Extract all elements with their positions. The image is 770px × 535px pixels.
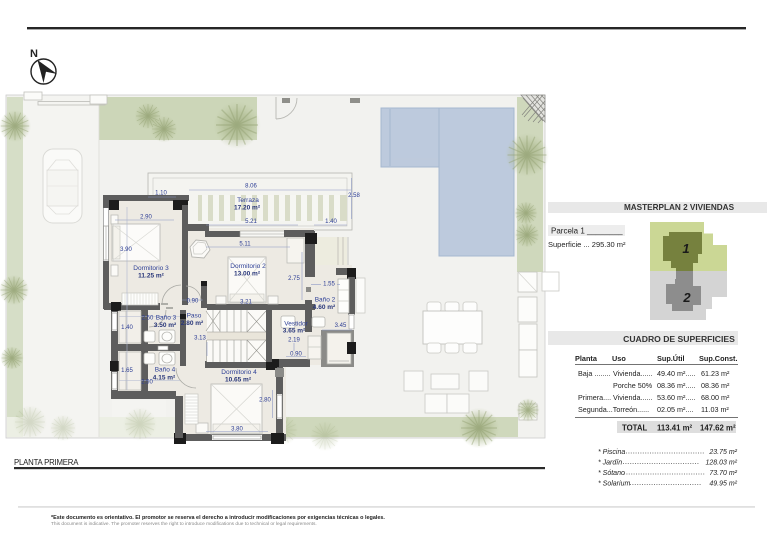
svg-text:3.65 m²: 3.65 m²	[283, 328, 306, 335]
svg-text:11.25 m²: 11.25 m²	[138, 273, 164, 280]
svg-text:Segunda...Torreón......: Segunda...Torreón......	[578, 405, 649, 414]
svg-text:2.58: 2.58	[348, 193, 360, 199]
svg-text:61.23 m²: 61.23 m²	[701, 369, 730, 378]
svg-text:Porche 50%: Porche 50%	[613, 381, 653, 390]
svg-text:1.55: 1.55	[323, 282, 335, 288]
svg-text:Vivienda......: Vivienda......	[613, 369, 652, 378]
svg-text:2.50: 2.50	[142, 316, 154, 322]
svg-text:13.00 m²: 13.00 m²	[234, 271, 261, 278]
svg-text:17.20 m²: 17.20 m²	[234, 205, 261, 212]
svg-text:3.13: 3.13	[194, 336, 206, 342]
svg-text:08.36 m²: 08.36 m²	[701, 381, 730, 390]
svg-text:2.80: 2.80	[259, 398, 271, 404]
svg-text:0.90: 0.90	[290, 352, 302, 358]
svg-text:8.06: 8.06	[245, 184, 257, 190]
svg-text:68.00 m²: 68.00 m²	[701, 393, 730, 402]
svg-text:2.50: 2.50	[141, 380, 153, 386]
svg-text:* Solarium: * Solarium	[598, 481, 630, 488]
svg-text:3.80: 3.80	[231, 427, 243, 433]
svg-text:2.19: 2.19	[288, 338, 300, 344]
svg-text:Superficie ... 295.30 m²: Superficie ... 295.30 m²	[548, 240, 626, 249]
svg-text:* Piscina: * Piscina	[598, 449, 625, 456]
svg-text:147.62 m²: 147.62 m²	[700, 424, 736, 433]
svg-text:3.21: 3.21	[240, 300, 252, 306]
svg-text:Sup.Útil: Sup.Útil	[657, 354, 685, 363]
svg-text:4.15 m²: 4.15 m²	[153, 375, 176, 382]
svg-text:Parcela 1 ________: Parcela 1 ________	[551, 227, 623, 236]
svg-text:Baño 2: Baño 2	[315, 297, 336, 304]
svg-text:23.75 m²: 23.75 m²	[708, 449, 737, 456]
svg-text:2.75: 2.75	[288, 276, 300, 282]
svg-text:5.21: 5.21	[245, 219, 257, 225]
svg-text:1: 1	[682, 241, 689, 256]
svg-text:Terraza: Terraza	[237, 197, 259, 204]
svg-text:Dormitorio 4: Dormitorio 4	[221, 369, 257, 376]
svg-text:1.10: 1.10	[155, 191, 167, 197]
svg-text:3.90: 3.90	[120, 247, 132, 253]
svg-text:0.90: 0.90	[187, 299, 199, 305]
svg-text:Uso: Uso	[612, 354, 626, 363]
svg-text:113.41 m²: 113.41 m²	[657, 424, 693, 433]
svg-text:11.03 m²: 11.03 m²	[701, 405, 729, 414]
svg-text:Dormitorio 3: Dormitorio 3	[133, 265, 169, 272]
svg-text:Vestidor: Vestidor	[284, 321, 308, 328]
svg-text:This document is indicative. T: This document is indicative. The promote…	[51, 521, 317, 527]
svg-text:TOTAL: TOTAL	[622, 424, 648, 433]
svg-text:PLANTA PRIMERA: PLANTA PRIMERA	[14, 458, 79, 467]
svg-text:2.80 m²: 2.80 m²	[181, 320, 204, 327]
svg-text:Vivienda......: Vivienda......	[613, 393, 652, 402]
svg-text:Paso: Paso	[187, 313, 202, 320]
svg-text:2.90: 2.90	[140, 215, 152, 221]
svg-text:* Jardín: * Jardín	[598, 460, 622, 467]
svg-text:Baño 4: Baño 4	[155, 367, 176, 374]
svg-text:1.40: 1.40	[121, 325, 133, 331]
svg-text:Dormitorio 2: Dormitorio 2	[230, 263, 266, 270]
svg-text:49.95 m²: 49.95 m²	[709, 481, 737, 488]
svg-text:08.36 m².....: 08.36 m².....	[657, 381, 695, 390]
svg-text:10.65 m²: 10.65 m²	[225, 377, 252, 384]
svg-text:N: N	[30, 48, 38, 60]
svg-text:73.70 m²: 73.70 m²	[709, 470, 737, 477]
svg-text:128.03 m²: 128.03 m²	[705, 460, 737, 467]
svg-text:1.65: 1.65	[121, 368, 133, 374]
svg-text:5.11: 5.11	[239, 242, 251, 248]
svg-text:Primera....: Primera....	[578, 393, 611, 402]
svg-text:49.40 m².....: 49.40 m².....	[657, 369, 695, 378]
svg-text:CUADRO DE SUPERFICIES: CUADRO DE SUPERFICIES	[623, 334, 735, 344]
svg-text:02.05 m²....: 02.05 m²....	[657, 405, 693, 414]
svg-text:Planta: Planta	[575, 354, 598, 363]
svg-text:MASTERPLAN 2 VIVIENDAS: MASTERPLAN 2 VIVIENDAS	[624, 203, 735, 212]
svg-text:*Este documento es orientativo: *Este documento es orientativo. El promo…	[51, 515, 385, 521]
svg-text:53.60 m².....: 53.60 m².....	[657, 393, 695, 402]
svg-text:4.60 m²: 4.60 m²	[313, 304, 336, 311]
svg-text:Baja ........: Baja ........	[578, 369, 610, 378]
svg-text:Sup.Const.: Sup.Const.	[699, 354, 738, 363]
svg-text:3.45: 3.45	[335, 323, 347, 329]
svg-text:1.40: 1.40	[325, 219, 337, 225]
svg-text:Baño 3: Baño 3	[156, 315, 177, 322]
svg-text:3.50 m²: 3.50 m²	[154, 322, 177, 329]
svg-text:2: 2	[682, 290, 691, 305]
svg-text:* Sótano: * Sótano	[598, 470, 625, 477]
